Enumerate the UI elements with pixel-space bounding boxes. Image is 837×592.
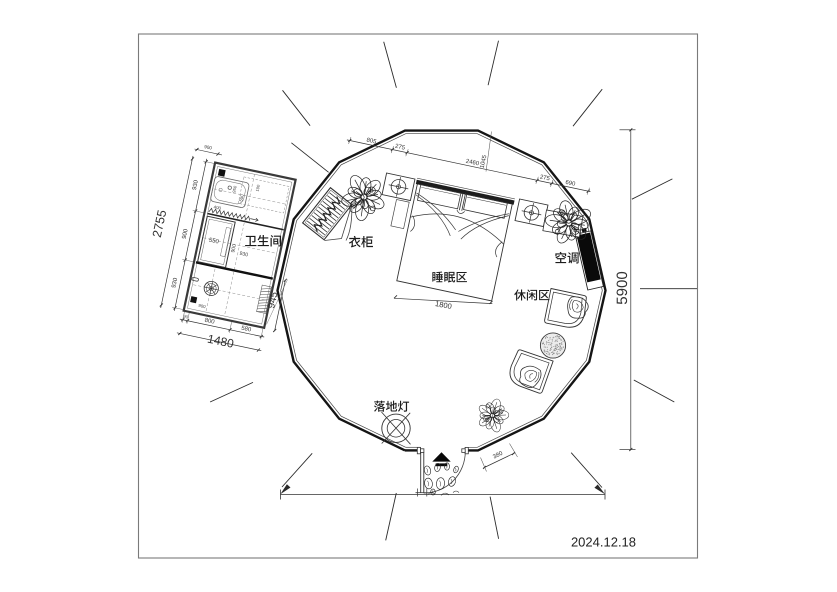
svg-text:5900: 5900 — [614, 271, 631, 304]
svg-text:2024.12.18: 2024.12.18 — [571, 535, 636, 550]
